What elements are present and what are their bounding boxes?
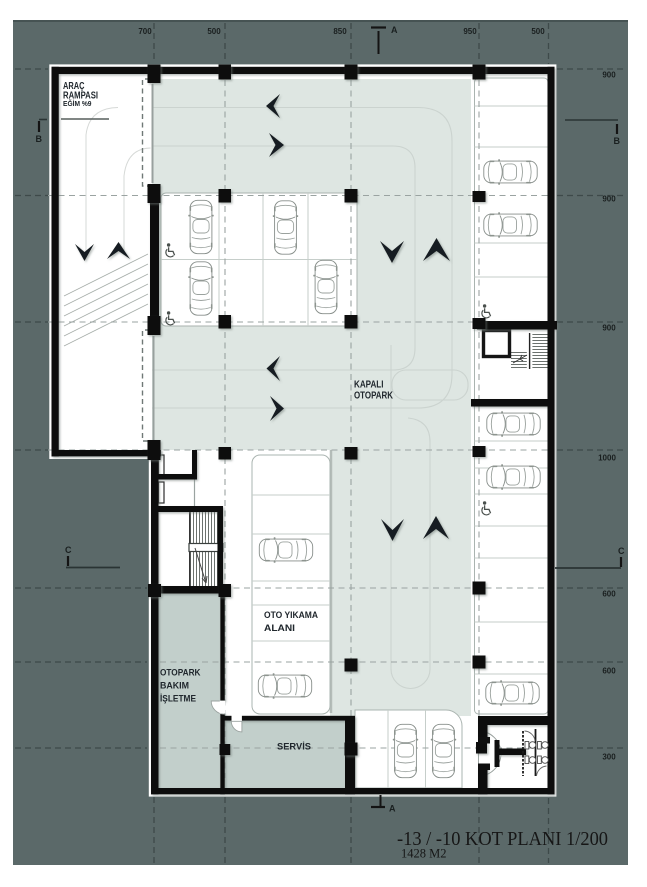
svg-text:900: 900 [602,71,616,80]
svg-text:KAPALI: KAPALI [354,380,384,391]
svg-text:İŞLETME: İŞLETME [160,694,196,705]
svg-text:C: C [65,545,72,555]
svg-text:EĞİM %9: EĞİM %9 [63,99,92,108]
svg-text:B: B [36,134,43,144]
svg-text:500: 500 [207,27,221,36]
svg-text:600: 600 [602,667,616,676]
svg-text:300: 300 [602,753,616,762]
svg-text:ALANI: ALANI [264,623,295,634]
svg-text:OTO YIKAMA: OTO YIKAMA [264,610,318,621]
svg-text:900: 900 [602,324,616,333]
svg-text:1000: 1000 [598,454,616,463]
svg-text:600: 600 [602,590,616,599]
svg-text:C: C [618,546,625,556]
svg-text:SERVİS: SERVİS [277,742,311,753]
svg-text:900: 900 [602,195,616,204]
svg-text:B: B [614,136,621,146]
svg-text:OTOPARK: OTOPARK [354,391,394,402]
svg-text:A: A [389,804,396,814]
svg-text:1428 M2: 1428 M2 [401,847,447,861]
svg-text:OTOPARK: OTOPARK [160,668,201,679]
svg-text:700: 700 [138,27,152,36]
svg-text:BAKIM: BAKIM [160,681,189,692]
svg-text:A: A [391,25,398,35]
svg-text:950: 950 [463,27,477,36]
svg-text:850: 850 [333,27,347,36]
svg-text:500: 500 [531,27,545,36]
